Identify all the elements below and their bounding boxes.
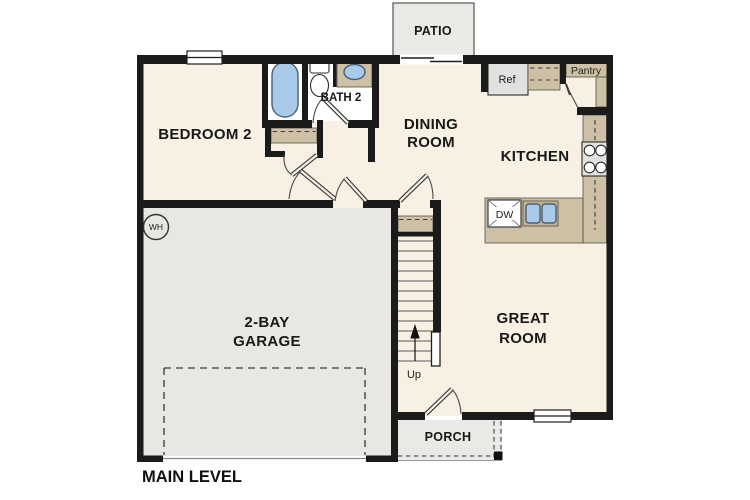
bath2-label: BATH 2: [321, 92, 362, 104]
patio-label: PATIO: [414, 24, 452, 38]
porch-label: PORCH: [425, 430, 472, 444]
kitchen-counter-right: [583, 115, 607, 243]
stair-railing: [432, 332, 441, 366]
garage-label-line2: GARAGE: [233, 333, 301, 350]
bedroom-window: [187, 51, 222, 64]
great-room-label-line1: GREAT: [497, 310, 550, 327]
bedroom-closet-shelf: [271, 128, 317, 143]
patio-sliding-door: [400, 55, 463, 65]
great-room-window: [534, 410, 571, 422]
kitchen-counter-top: [528, 63, 560, 90]
water-heater-label: WH: [149, 222, 163, 232]
great-room-label-line2: ROOM: [499, 330, 547, 347]
dining-room-label-line2: ROOM: [407, 134, 455, 151]
tub-partition-wall: [302, 58, 308, 121]
dishwasher-label: DW: [496, 209, 514, 221]
pantry-label: Pantry: [571, 65, 602, 77]
stove-icon: [582, 142, 607, 176]
floor-plan-page: PATIO BEDROOM 2 BATH 2 DINING ROOM KITCH…: [0, 0, 750, 500]
dining-room-label-line1: DINING: [404, 116, 458, 133]
plan-title: MAIN LEVEL: [142, 468, 242, 486]
kitchen-label: KITCHEN: [501, 148, 570, 165]
bathtub-icon: [272, 62, 298, 117]
garage-label-line1: 2-BAY: [244, 314, 289, 331]
garage-floor: [143, 208, 391, 456]
refrigerator-label: Ref: [498, 74, 516, 86]
bedroom2-label: BEDROOM 2: [158, 126, 252, 143]
floor-plan-drawing: PATIO BEDROOM 2 BATH 2 DINING ROOM KITCH…: [0, 0, 750, 500]
kitchen-sink-icon: [523, 201, 558, 226]
stairs-up-label: Up: [407, 369, 421, 381]
porch-post: [494, 452, 503, 461]
